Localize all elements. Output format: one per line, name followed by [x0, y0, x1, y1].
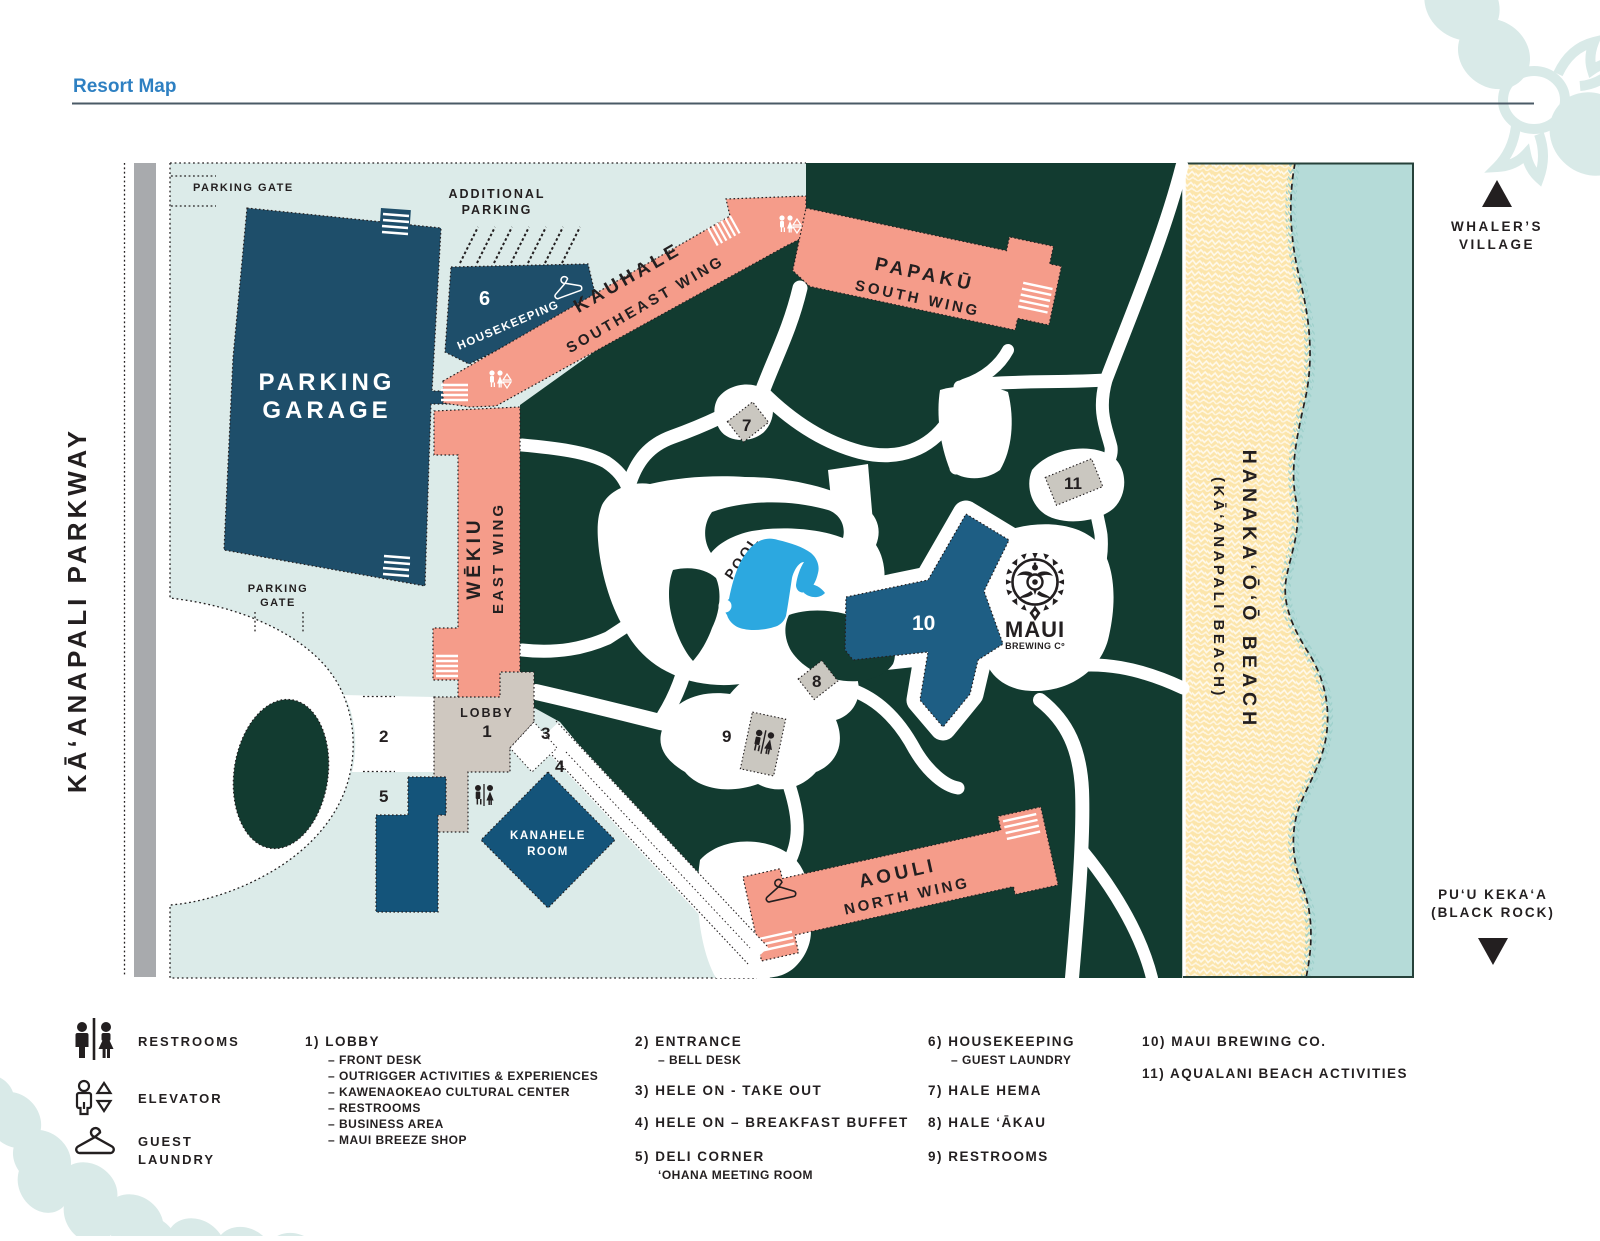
svg-text:1: 1 [482, 722, 491, 741]
svg-text:LOBBY: LOBBY [460, 706, 514, 720]
svg-text:11) AQUALANI BEACH ACTIVITIES: 11) AQUALANI BEACH ACTIVITIES [1142, 1066, 1408, 1081]
svg-text:9: 9 [722, 727, 731, 746]
svg-text:HANAKA‘Ō‘Ō BEACH: HANAKA‘Ō‘Ō BEACH [1238, 450, 1260, 730]
svg-text:– OUTRIGGER ACTIVITIES & EXPER: – OUTRIGGER ACTIVITIES & EXPERIENCES [328, 1069, 598, 1083]
svg-text:11: 11 [1064, 474, 1082, 493]
svg-text:MAUI: MAUI [1005, 617, 1065, 642]
svg-text:VILLAGE: VILLAGE [1459, 237, 1535, 252]
svg-text:– FRONT DESK: – FRONT DESK [328, 1053, 422, 1067]
svg-text:KĀ‘ANAPALI PARKWAY: KĀ‘ANAPALI PARKWAY [62, 427, 92, 793]
svg-text:2: 2 [379, 727, 388, 746]
svg-text:PU‘U KEKA‘A: PU‘U KEKA‘A [1438, 887, 1548, 902]
svg-text:GUEST: GUEST [138, 1134, 193, 1149]
svg-text:4) HELE ON – BREAKFAST BUFFET: 4) HELE ON – BREAKFAST BUFFET [635, 1115, 909, 1130]
svg-text:LAUNDRY: LAUNDRY [138, 1152, 215, 1167]
svg-text:– MAUI BREEZE SHOP: – MAUI BREEZE SHOP [328, 1133, 467, 1147]
svg-text:5: 5 [379, 787, 388, 806]
svg-text:‘OHANA MEETING ROOM: ‘OHANA MEETING ROOM [658, 1168, 813, 1182]
svg-text:– BUSINESS AREA: – BUSINESS AREA [328, 1117, 444, 1131]
svg-text:ROOM: ROOM [527, 846, 569, 858]
svg-text:7) HALE HEMA: 7) HALE HEMA [928, 1083, 1042, 1098]
svg-text:5) DELI CORNER: 5) DELI CORNER [635, 1149, 765, 1164]
svg-text:3: 3 [541, 724, 550, 743]
svg-text:10) MAUI BREWING CO.: 10) MAUI BREWING CO. [1142, 1034, 1327, 1049]
svg-text:7: 7 [742, 416, 751, 435]
svg-text:PARKING: PARKING [248, 583, 308, 595]
svg-text:9) RESTROOMS: 9) RESTROOMS [928, 1149, 1049, 1164]
svg-text:EAST WING: EAST WING [490, 502, 507, 614]
svg-text:PARKING: PARKING [462, 203, 533, 217]
svg-text:4: 4 [555, 757, 565, 776]
svg-text:PARKING GATE: PARKING GATE [193, 182, 294, 194]
svg-text:KANAHELE: KANAHELE [510, 830, 586, 842]
svg-text:6) HOUSEKEEPING: 6) HOUSEKEEPING [928, 1034, 1075, 1049]
svg-text:Resort Map: Resort Map [73, 76, 176, 97]
svg-text:GATE: GATE [260, 597, 296, 609]
svg-text:2) ENTRANCE: 2) ENTRANCE [635, 1034, 742, 1049]
svg-text:RESTROOMS: RESTROOMS [138, 1034, 240, 1049]
svg-text:ADDITIONAL: ADDITIONAL [448, 187, 545, 201]
svg-text:(KĀ‘ANAPALI BEACH): (KĀ‘ANAPALI BEACH) [1210, 477, 1227, 699]
svg-text:3) HELE ON - TAKE OUT: 3) HELE ON - TAKE OUT [635, 1083, 822, 1098]
svg-text:WĒKIU: WĒKIU [464, 516, 485, 599]
svg-text:8) HALE ‘ĀKAU: 8) HALE ‘ĀKAU [928, 1115, 1047, 1130]
svg-text:(BLACK ROCK): (BLACK ROCK) [1431, 905, 1555, 920]
svg-text:– BELL DESK: – BELL DESK [658, 1053, 741, 1067]
svg-text:PARKING: PARKING [259, 369, 396, 396]
svg-text:– KAWENAOKEAO CULTURAL CENTER: – KAWENAOKEAO CULTURAL CENTER [328, 1085, 570, 1099]
svg-text:– RESTROOMS: – RESTROOMS [328, 1101, 421, 1115]
svg-text:WHALER’S: WHALER’S [1451, 219, 1543, 234]
svg-text:6: 6 [479, 288, 490, 310]
svg-text:– GUEST LAUNDRY: – GUEST LAUNDRY [951, 1053, 1071, 1067]
svg-text:GARAGE: GARAGE [262, 397, 391, 424]
svg-text:ELEVATOR: ELEVATOR [138, 1091, 223, 1106]
svg-text:8: 8 [812, 672, 821, 691]
svg-text:10: 10 [912, 612, 935, 635]
svg-text:BREWING Cº: BREWING Cº [1005, 641, 1065, 651]
svg-text:1) LOBBY: 1) LOBBY [305, 1034, 380, 1049]
